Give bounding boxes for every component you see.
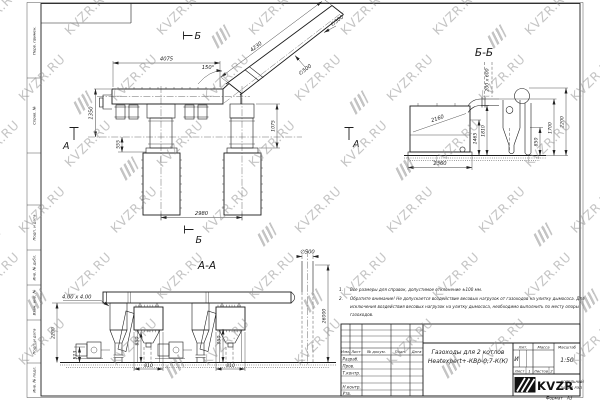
tb-hdr-massa: Масса	[537, 345, 550, 350]
drawing-canvas: Перв. примен. Справ. № Подп. и дата Инв.…	[0, 0, 600, 400]
dim-1700: 1700	[548, 122, 554, 134]
tb-row-nkontr: Н.контр.	[343, 385, 361, 390]
dim-2200-bb: 2200	[560, 116, 566, 128]
dim-850-aa: 850	[135, 337, 141, 346]
dim-1075: 1075	[271, 120, 277, 132]
tb-row-tkontr: Т.контр.	[343, 371, 361, 376]
dim-2980: 2980	[195, 211, 209, 217]
dim-1810: 1810	[481, 125, 487, 137]
dim-d500-chimney: ∅500	[300, 250, 315, 256]
view-label-bb: Б-Б	[475, 47, 493, 59]
dim-810-right: 810	[226, 363, 235, 369]
section-marker-b-bottom: Б	[196, 235, 203, 246]
tb-lit-value: И	[514, 356, 519, 363]
tb-sheet-label: Лист	[514, 369, 525, 374]
tb-row-razrab: Разраб.	[343, 357, 359, 362]
tb-row-utv: Утв.	[343, 391, 352, 396]
section-marker-b-top: Б	[195, 31, 202, 42]
dim-angle-150: 150°	[202, 65, 215, 71]
section-marker-a-right: А	[352, 139, 360, 150]
frame	[27, 3, 583, 398]
tb-col-list: Лист	[350, 349, 361, 354]
dim-d500-upper: ∅500	[330, 14, 346, 28]
tb-sheet-value: 1	[528, 369, 530, 374]
title-block: Изм. Лист № докум. Подп. Дата Разраб. Пр…	[341, 324, 584, 400]
dim-850-bb: 850	[534, 138, 540, 147]
dim-4075: 4075	[160, 57, 174, 63]
note-1-number: 1.	[339, 287, 343, 292]
dim-513: 513	[73, 351, 79, 360]
dim-d500-lower: ∅500	[298, 63, 314, 77]
dim-4230: 4230	[249, 40, 264, 53]
drawing-page: Перв. примен. Справ. № Подп. и дата Инв.…	[0, 0, 600, 400]
margin-cell-label: Перв. примен.	[31, 26, 36, 55]
margin-cell-label: Взам. инв. №	[32, 290, 37, 316]
notes: 1. Все размеры для справок, допустимое о…	[339, 287, 585, 317]
tb-title-line1: Газоходы для 2 котлов	[432, 349, 505, 356]
tb-company-line2: ЗАВОД РЭП	[561, 386, 583, 390]
dim-2360: 2360	[433, 161, 447, 167]
note-2-line1: Обратите внимание! Не допускается воздей…	[350, 296, 585, 301]
equipment-group	[73, 303, 163, 363]
tb-col-doc: № докум.	[366, 349, 386, 354]
note-2-line3: газоходов.	[350, 312, 373, 317]
tb-sheets-label: Листов	[533, 369, 549, 374]
view-label-aa: А-А	[197, 260, 216, 272]
dim-200x600: 200 x 600	[485, 68, 491, 91]
tb-hdr-masshtab: Масштаб	[558, 345, 577, 350]
dim-555: 555	[116, 140, 122, 149]
dim-2160: 2160	[430, 114, 445, 124]
tb-row-prov: Пров.	[343, 364, 355, 369]
dim-1350: 1350	[89, 106, 95, 120]
main-view: 4075 4230 150° ∅500 ∅500 1350 555 1075 2…	[62, 0, 346, 246]
section-view-bb: Б-Б А 2160 200 x 600 850 1700 2200	[345, 47, 569, 170]
tb-sheets-value: 2	[550, 369, 553, 374]
tb-col-izm: Изм.	[341, 349, 350, 354]
margin-cell-label: Инв. № подл.	[32, 366, 37, 392]
section-marker-a-left: А	[62, 141, 70, 152]
dim-2200-aa: 2200	[51, 327, 57, 339]
section-view-aa: А-А ∅500 26000	[51, 250, 337, 372]
tb-hdr-lit: Лит.	[518, 345, 528, 350]
note-2-number: 2.	[339, 296, 343, 301]
tb-company-line1: КОТЕЛЬНЫЙ	[561, 379, 585, 384]
dim-1465: 1465	[473, 133, 479, 145]
margin-cell-label: Инв. № дубл.	[32, 255, 37, 281]
tb-scale-value: 1:50	[560, 357, 574, 364]
tb-title-line2: Heatexpert+-КВр-0,7-К(К)	[428, 358, 508, 365]
dim-950: 950	[217, 336, 223, 345]
dim-duct-size: 4.00 x 4.00	[62, 295, 92, 301]
tb-format-value: А3	[566, 395, 573, 400]
note-1-text: Все размеры для справок, допустимое откл…	[350, 287, 482, 292]
dim-810-left: 810	[144, 363, 153, 369]
kvzr-logo-icon	[515, 377, 536, 393]
margin-cell-label: Подп. и дата	[32, 328, 37, 355]
tb-format-label: Формат	[546, 395, 563, 400]
margin-column: Перв. примен. Справ. № Подп. и дата Инв.…	[31, 26, 36, 392]
margin-cell-label: Подп. и дата	[32, 214, 37, 241]
dim-26000: 26000	[322, 309, 328, 324]
note-2-line2: исключения воздействия весовых нагрузок …	[350, 304, 580, 309]
tb-col-podp: Подп.	[395, 349, 407, 354]
margin-cell-label: Справ. №	[32, 106, 37, 125]
tb-col-data: Дата	[411, 349, 423, 354]
